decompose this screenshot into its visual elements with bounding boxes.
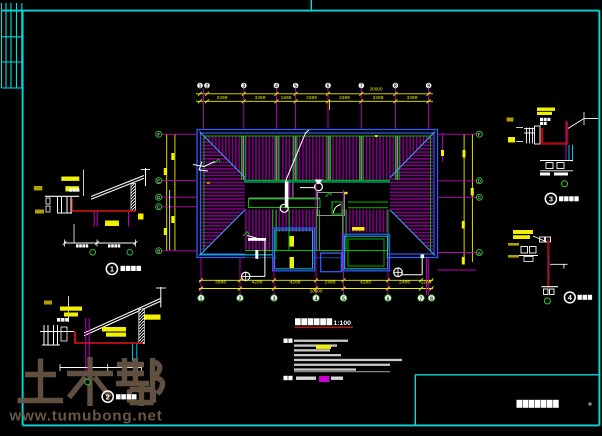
svg-text:8: 8: [430, 296, 433, 302]
svg-text:3600: 3600: [215, 279, 226, 285]
svg-text:9: 9: [427, 84, 430, 90]
svg-text:E: E: [157, 178, 160, 183]
svg-text:3300: 3300: [406, 95, 417, 101]
svg-text:1:100: 1:100: [334, 320, 352, 327]
svg-text:1: 1: [200, 296, 203, 302]
svg-text:3: 3: [273, 296, 276, 302]
svg-text:3300: 3300: [372, 95, 383, 101]
svg-text:2: 2: [206, 84, 209, 90]
svg-text:7: 7: [360, 84, 363, 90]
svg-text:4200: 4200: [251, 279, 262, 285]
svg-text:2400: 2400: [324, 279, 335, 285]
svg-text:20000: 20000: [370, 87, 383, 92]
svg-text:F: F: [478, 132, 481, 137]
svg-text:2400: 2400: [399, 279, 410, 285]
svg-text:F: F: [157, 132, 160, 137]
svg-text:www.tumubong.net: www.tumubong.net: [9, 408, 163, 425]
svg-text:A: A: [478, 250, 481, 255]
svg-text:3300: 3300: [216, 95, 227, 101]
svg-text:1: 1: [199, 84, 202, 90]
svg-text:4200: 4200: [360, 279, 371, 285]
svg-text:4200: 4200: [289, 279, 300, 285]
svg-text:6: 6: [327, 84, 330, 90]
svg-text:20000: 20000: [310, 288, 323, 293]
svg-text:3: 3: [242, 84, 245, 90]
svg-text:1200: 1200: [420, 279, 431, 285]
svg-text:4: 4: [315, 296, 318, 302]
svg-text:B: B: [157, 249, 160, 254]
svg-text:2: 2: [239, 296, 242, 302]
svg-text:5: 5: [294, 84, 297, 90]
svg-text:2: 2: [106, 392, 110, 401]
svg-text:1: 1: [110, 265, 114, 274]
svg-text:6: 6: [387, 296, 390, 302]
svg-text:3300: 3300: [339, 95, 350, 101]
svg-text:5: 5: [342, 296, 345, 302]
svg-text:4: 4: [275, 84, 278, 90]
svg-text:3: 3: [549, 195, 553, 204]
svg-text:8: 8: [394, 84, 397, 90]
svg-text:7: 7: [420, 296, 423, 302]
svg-text:3300: 3300: [254, 95, 265, 101]
svg-text:3300: 3300: [306, 95, 317, 101]
svg-text:1800: 1800: [280, 95, 291, 101]
